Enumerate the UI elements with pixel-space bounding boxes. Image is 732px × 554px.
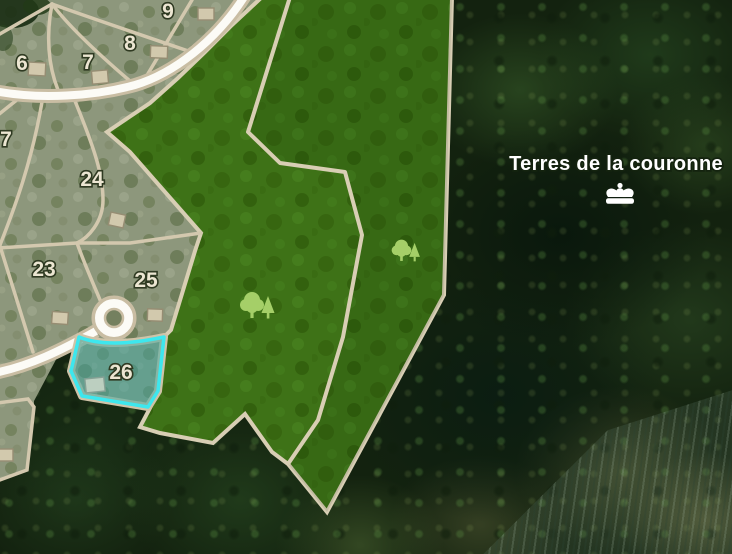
parcel-bottom-left[interactable] bbox=[0, 399, 34, 481]
parcel-label-9: 9 bbox=[162, 0, 174, 23]
map-canvas[interactable]: 6 7 8 9 7 24 23 25 26 Terres de la couro… bbox=[0, 0, 732, 554]
parcel-label-7: 7 bbox=[82, 51, 94, 74]
parcel-label-25: 25 bbox=[134, 269, 158, 292]
parcel-label-7-west: 7 bbox=[0, 128, 12, 151]
cul-de-sac bbox=[94, 298, 134, 338]
crown-icon bbox=[606, 183, 634, 204]
parcel-label-8: 8 bbox=[124, 32, 136, 55]
parcel-label-24: 24 bbox=[80, 168, 104, 191]
cadastre-overlay: 6 7 8 9 7 24 23 25 26 Terres de la couro… bbox=[0, 0, 732, 554]
parcel-label-26: 26 bbox=[109, 361, 132, 384]
region-label: Terres de la couronne bbox=[509, 153, 723, 175]
parcel-label-23: 23 bbox=[32, 258, 55, 281]
parcel-label-6: 6 bbox=[16, 52, 28, 75]
